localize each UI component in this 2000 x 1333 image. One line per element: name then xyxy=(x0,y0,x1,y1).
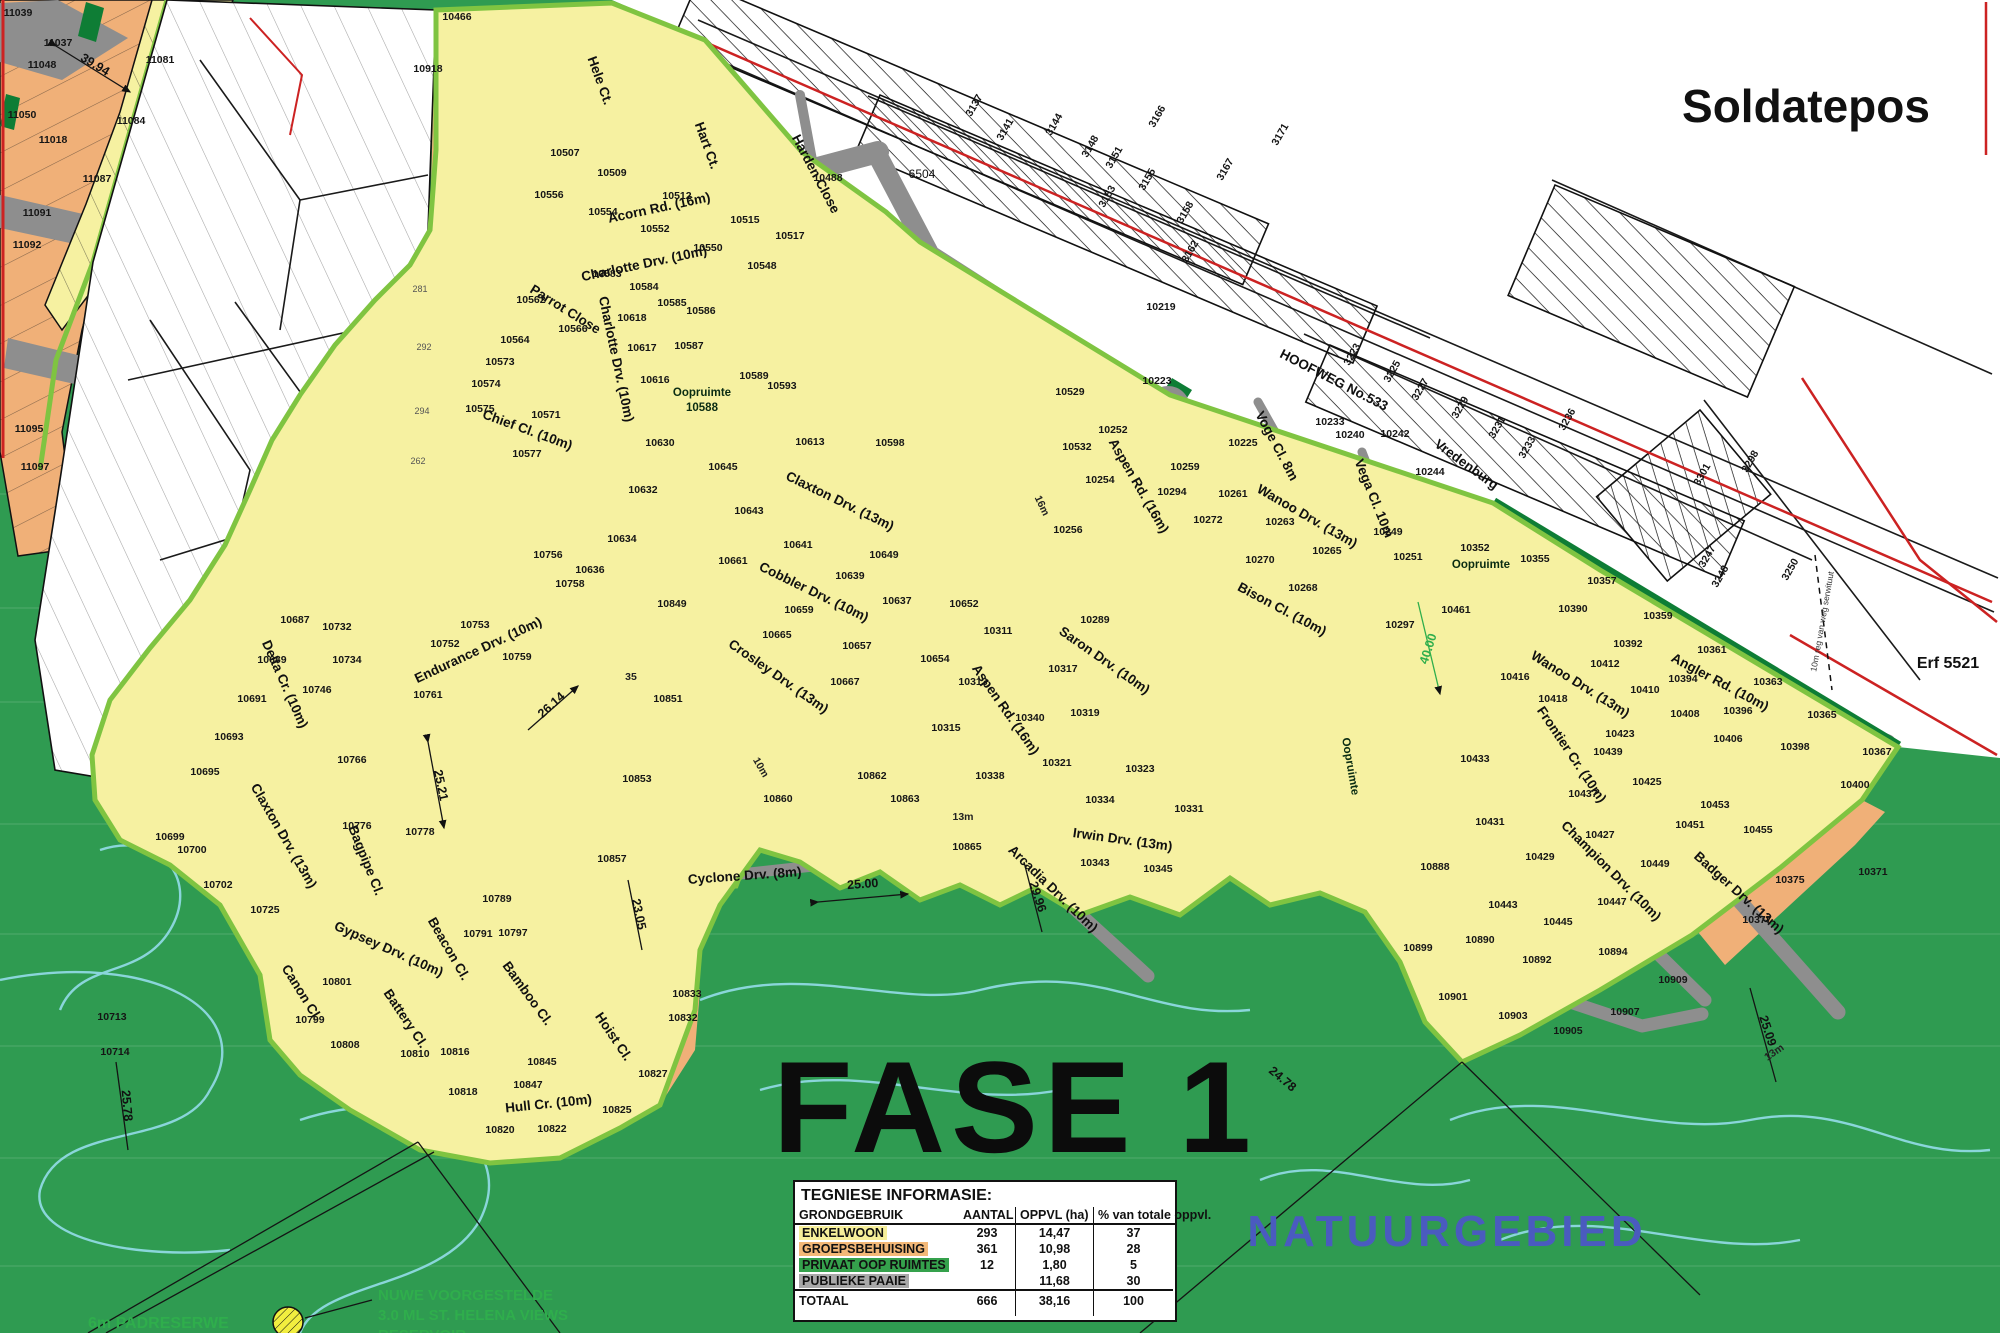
plot-number: 10425 xyxy=(1632,776,1661,788)
plot-number: 10753 xyxy=(460,619,489,631)
plot-number: 10799 xyxy=(295,1014,324,1026)
plot-number: 10649 xyxy=(869,549,898,561)
plot-number: 10827 xyxy=(638,1068,667,1080)
plot-number: 10466 xyxy=(442,11,471,23)
plot-number: 10894 xyxy=(1598,946,1627,958)
col-header: GRONDGEBRUIK xyxy=(795,1207,959,1223)
plot-number: 10639 xyxy=(835,570,864,582)
plot-number: 10613 xyxy=(795,436,824,448)
plot-number: 10634 xyxy=(607,533,636,545)
plot-number: 10509 xyxy=(597,167,626,179)
plot-number: 10566 xyxy=(558,323,587,335)
plot-number: 10265 xyxy=(1312,545,1341,557)
plot-number: 10340 xyxy=(1015,712,1044,724)
plot-number: 10574 xyxy=(471,378,500,390)
plot-number: 10810 xyxy=(400,1048,429,1060)
plot-number: 10394 xyxy=(1668,673,1697,685)
plot-number: 11037 xyxy=(44,37,73,49)
plot-number: 10714 xyxy=(100,1046,129,1058)
reservoir-label-line1: NUWE VOORGESTELDE xyxy=(378,1287,553,1304)
plot-number: 10554 xyxy=(588,206,617,218)
plot-number: 10338 xyxy=(975,770,1004,782)
plot-number: 11048 xyxy=(28,59,57,71)
plot-number: 10396 xyxy=(1723,705,1752,717)
total-label: TOTAAL xyxy=(795,1289,959,1316)
plot-number: 10244 xyxy=(1415,466,1444,478)
land-parcel-label: 6504 xyxy=(909,167,936,181)
plot-number: 10517 xyxy=(775,230,804,242)
plot-number: 10892 xyxy=(1522,954,1551,966)
plot-number: 10899 xyxy=(1403,942,1432,954)
plot-number: 10455 xyxy=(1743,824,1772,836)
plot-number: 10652 xyxy=(949,598,978,610)
plot-number: 10713 xyxy=(97,1011,126,1023)
oopruimte-label: Oopruimte xyxy=(1452,559,1510,571)
pct-value: 30 xyxy=(1093,1273,1173,1289)
plot-number: 10693 xyxy=(214,731,243,743)
oppvl-value: 10,98 xyxy=(1015,1241,1093,1257)
col-header: OPPVL (ha) xyxy=(1015,1207,1093,1223)
plot-number: 10317 xyxy=(1048,663,1077,675)
plot-number: 11087 xyxy=(83,173,112,185)
landuse-label: PRIVAAT OOP RUIMTES xyxy=(799,1258,949,1272)
plot-number: 10289 xyxy=(1080,614,1109,626)
plot-number: 11091 xyxy=(23,207,52,219)
plot-number: 281 xyxy=(412,284,427,294)
oppvl-value: 1,80 xyxy=(1015,1257,1093,1273)
plot-number: 10443 xyxy=(1488,899,1517,911)
plot-number: 10556 xyxy=(534,189,563,201)
padreserwe-label: 6m PADRESERWE xyxy=(88,1315,229,1332)
plot-number: 10297 xyxy=(1385,619,1414,631)
plot-number: 10240 xyxy=(1335,429,1364,441)
pct-value: 5 xyxy=(1093,1257,1173,1273)
plot-number: 10905 xyxy=(1553,1025,1582,1037)
plot-number: 10761 xyxy=(413,689,442,701)
plot-number: 10571 xyxy=(531,409,560,421)
table-row: GROEPSBEHUISING 361 10,98 28 xyxy=(795,1241,1175,1257)
plot-number: 10832 xyxy=(668,1012,697,1024)
plot-number: 10797 xyxy=(498,927,527,939)
pct-value: 37 xyxy=(1093,1225,1173,1241)
plot-number: 10313 xyxy=(958,676,987,688)
plot-number: 10562 xyxy=(516,294,545,306)
plot-number: 10512 xyxy=(662,190,691,202)
plot-number: 10449 xyxy=(1640,858,1669,870)
plot-number: 10654 xyxy=(920,653,949,665)
plot-number: 10345 xyxy=(1143,863,1172,875)
plot-number: 10315 xyxy=(931,722,960,734)
dimension: 25.78 xyxy=(119,1089,136,1121)
plot-number: 10375 xyxy=(1775,874,1804,886)
dimension: 25.00 xyxy=(847,876,879,892)
plot-number: 10778 xyxy=(405,826,434,838)
plot-number: 10847 xyxy=(513,1079,542,1091)
plot-number: 10907 xyxy=(1610,1006,1639,1018)
plot-number: 10617 xyxy=(627,342,656,354)
natuurgebied-label: NATUURGEBIED xyxy=(1247,1207,1646,1256)
plot-number: 10665 xyxy=(762,629,791,641)
reservoir-symbol xyxy=(273,1307,303,1333)
plot-number: 10699 xyxy=(155,831,184,843)
plot-number: 10431 xyxy=(1475,816,1504,828)
plot-number: 10700 xyxy=(177,844,206,856)
plot-number: 10725 xyxy=(250,904,279,916)
plot-number: 10408 xyxy=(1670,708,1699,720)
plot-number: 10400 xyxy=(1840,779,1869,791)
plot-number: 10377 xyxy=(1742,914,1771,926)
plot-number: 10398 xyxy=(1780,741,1809,753)
plot-number: 10263 xyxy=(1265,516,1294,528)
erf-label: Erf 5521 xyxy=(1917,655,1979,672)
plot-number: 10630 xyxy=(645,437,674,449)
plot-number: 10311 xyxy=(984,625,1013,637)
plot-number: 10392 xyxy=(1613,638,1642,650)
plot-number: 10752 xyxy=(430,638,459,650)
plot-number: 10451 xyxy=(1675,819,1704,831)
plot-number: 10833 xyxy=(672,988,701,1000)
plot-number: 11050 xyxy=(8,109,37,121)
plot-number: 10259 xyxy=(1170,461,1199,473)
plot-number: 10433 xyxy=(1460,753,1489,765)
plot-number: 10845 xyxy=(527,1056,556,1068)
plot-number: 10584 xyxy=(629,281,658,293)
plot-number: 10865 xyxy=(952,841,981,853)
plot-number: 11081 xyxy=(146,54,175,66)
plot-number: 10661 xyxy=(718,555,747,567)
plot-number: 10427 xyxy=(1585,829,1614,841)
table-row: PRIVAAT OOP RUIMTES 12 1,80 5 xyxy=(795,1257,1175,1273)
col-header: AANTAL xyxy=(959,1207,1015,1223)
plot-number: 10453 xyxy=(1700,799,1729,811)
plot-number: 10918 xyxy=(413,63,442,75)
plot-number: 10371 xyxy=(1858,866,1887,878)
plot-number: 10357 xyxy=(1587,575,1616,587)
plot-number: 10365 xyxy=(1807,709,1836,721)
plot-number: 11095 xyxy=(15,423,44,435)
total-aantal: 666 xyxy=(959,1289,1015,1316)
oppvl-value: 14,47 xyxy=(1015,1225,1093,1241)
oppvl-value: 11,68 xyxy=(1015,1273,1093,1289)
plot-number: 10587 xyxy=(674,340,703,352)
plot-number: 294 xyxy=(414,406,429,416)
plot-number: 10643 xyxy=(734,505,763,517)
table-title: TEGNIESE INFORMASIE: xyxy=(795,1182,1175,1207)
plot-number: 10632 xyxy=(628,484,657,496)
plot-number: 11097 xyxy=(21,461,50,473)
plot-number: 10598 xyxy=(875,437,904,449)
plot-number: 10488 xyxy=(813,172,842,184)
table-header-row: GRONDGEBRUIK AANTAL OPPVL (ha) % van tot… xyxy=(795,1207,1175,1225)
plot-number: 10343 xyxy=(1080,857,1109,869)
plot-number: 10589 xyxy=(739,370,768,382)
plot-number: 10261 xyxy=(1218,488,1247,500)
plot-number: 10219 xyxy=(1146,301,1175,313)
aantal-value xyxy=(959,1273,1015,1289)
plot-number: 292 xyxy=(416,342,431,352)
plot-number: 10423 xyxy=(1605,728,1634,740)
plot-number: 10732 xyxy=(322,621,351,633)
plot-number: 10507 xyxy=(550,147,579,159)
plot-number: 10909 xyxy=(1658,974,1687,986)
plot-number: 10862 xyxy=(857,770,886,782)
plot-number: 10410 xyxy=(1630,684,1659,696)
plot-number: 10321 xyxy=(1042,757,1071,769)
plot-number: 10776 xyxy=(342,820,371,832)
plot-number: 10851 xyxy=(653,693,682,705)
plot-number: 10860 xyxy=(763,793,792,805)
plot-number: 10529 xyxy=(1055,386,1084,398)
plot-number: 10256 xyxy=(1053,524,1082,536)
plot-number: 10272 xyxy=(1193,514,1222,526)
plot-number: 10618 xyxy=(617,312,646,324)
plot-number: 10439 xyxy=(1593,746,1622,758)
aantal-value: 12 xyxy=(959,1257,1015,1273)
plot-number: 10223 xyxy=(1142,375,1171,387)
map-canvas: Acorn Rd. (16m) Harden Close Hele Ct. Ha… xyxy=(0,0,2000,1333)
plot-number: 11084 xyxy=(117,115,146,127)
plot-number: 10593 xyxy=(767,380,796,392)
plot-number: 10252 xyxy=(1098,424,1127,436)
aantal-value: 293 xyxy=(959,1225,1015,1241)
plot-number: 10641 xyxy=(783,539,812,551)
plot-number: 10734 xyxy=(332,654,361,666)
landuse-label: GROEPSBEHUISING xyxy=(799,1242,928,1256)
plot-number: 10583 xyxy=(592,268,621,280)
plot-number: 10445 xyxy=(1543,916,1572,928)
plot-number: 10294 xyxy=(1157,486,1186,498)
plot-number: 10270 xyxy=(1245,554,1274,566)
plot-number: 10853 xyxy=(622,773,651,785)
plot-number: 10585 xyxy=(657,297,686,309)
plot-number: 10564 xyxy=(500,334,529,346)
plot-number: 10225 xyxy=(1228,437,1257,449)
plot-number: 10552 xyxy=(640,223,669,235)
landuse-label: PUBLIEKE PAAIE xyxy=(799,1274,909,1288)
plot-number: 10903 xyxy=(1498,1010,1527,1022)
plot-number: 10334 xyxy=(1085,794,1114,806)
aantal-value: 361 xyxy=(959,1241,1015,1257)
plot-number: 10249 xyxy=(1373,526,1402,538)
plot-number: 10515 xyxy=(730,214,759,226)
table-row: PUBLIEKE PAAIE 11,68 30 xyxy=(795,1273,1175,1289)
plot-number: 10890 xyxy=(1465,934,1494,946)
plot-number: 11039 xyxy=(4,7,33,19)
total-oppvl: 38,16 xyxy=(1015,1289,1093,1316)
plot-number: 10822 xyxy=(537,1123,566,1135)
plot-number: 10233 xyxy=(1315,416,1344,428)
plot-number: 10363 xyxy=(1753,676,1782,688)
plot-number: 10616 xyxy=(640,374,669,386)
plot-number: 10691 xyxy=(237,693,266,705)
plot-number: 10406 xyxy=(1713,733,1742,745)
reservoir-label-line3: RESERVOIR xyxy=(378,1327,466,1333)
plot-number: 10268 xyxy=(1288,582,1317,594)
plot-number: 10331 xyxy=(1174,803,1203,815)
plot-number: 10687 xyxy=(280,614,309,626)
plot-number: 10355 xyxy=(1520,553,1549,565)
table-total-row: TOTAAL 666 38,16 100 xyxy=(795,1289,1175,1316)
plot-number: 10461 xyxy=(1441,604,1470,616)
plot-number: 10586 xyxy=(686,305,715,317)
plot-number: 10418 xyxy=(1538,693,1567,705)
pct-value: 28 xyxy=(1093,1241,1173,1257)
plot-number: 10702 xyxy=(203,879,232,891)
town-planning-map: Acorn Rd. (16m) Harden Close Hele Ct. Ha… xyxy=(0,0,2000,1333)
plot-number: 10766 xyxy=(337,754,366,766)
plot-number: 10390 xyxy=(1558,603,1587,615)
plot-number: 10577 xyxy=(512,448,541,460)
plot-number: 10548 xyxy=(747,260,776,272)
plot-number: 10746 xyxy=(302,684,331,696)
plot-number: 10756 xyxy=(533,549,562,561)
table-row: ENKELWOON 293 14,47 37 xyxy=(795,1225,1175,1241)
plot-number: 10863 xyxy=(890,793,919,805)
technical-info-table: TEGNIESE INFORMASIE: GRONDGEBRUIK AANTAL… xyxy=(793,1180,1177,1322)
plot-number: 10429 xyxy=(1525,851,1554,863)
landuse-label: ENKELWOON xyxy=(799,1226,887,1240)
soldatepos-label: Soldatepos xyxy=(1682,80,1930,132)
col-header: % van totale oppvl. xyxy=(1093,1207,1173,1223)
road-width-mark: 13m xyxy=(952,811,973,823)
phase-title: FASE 1 xyxy=(773,1034,1257,1180)
plot-number: 10689 xyxy=(257,654,286,666)
plot-number: 10251 xyxy=(1393,551,1422,563)
plot-number: 10367 xyxy=(1862,746,1891,758)
plot-number: 10437 xyxy=(1568,788,1597,800)
plot-number: 10645 xyxy=(708,461,737,473)
plot-number: 10416 xyxy=(1500,671,1529,683)
plot-number: 10791 xyxy=(463,928,492,940)
plot-number: 10759 xyxy=(502,651,531,663)
plot-number: 10657 xyxy=(842,640,871,652)
plot-number: 10816 xyxy=(440,1046,469,1058)
plot-number: 10818 xyxy=(448,1086,477,1098)
plot-number: 10254 xyxy=(1085,474,1114,486)
plot-number: 10758 xyxy=(555,578,584,590)
plot-number: 10323 xyxy=(1125,763,1154,775)
plot-number: 10857 xyxy=(597,853,626,865)
oopruimte-label: Oopruimte xyxy=(673,387,731,399)
plot-number: 10532 xyxy=(1062,441,1091,453)
oopruimte-number: 10588 xyxy=(686,402,719,414)
plot-number: 10573 xyxy=(485,356,514,368)
plot-number: 10901 xyxy=(1438,991,1467,1003)
plot-number: 10575 xyxy=(465,403,494,415)
plot-number: 10242 xyxy=(1380,428,1409,440)
plot-number: 10801 xyxy=(322,976,351,988)
plot-number: 10888 xyxy=(1420,861,1449,873)
plot-number: 10637 xyxy=(882,595,911,607)
plot-number: 10319 xyxy=(1070,707,1099,719)
plot-number: 10447 xyxy=(1597,896,1626,908)
plot-number: 10636 xyxy=(575,564,604,576)
plot-number: 11018 xyxy=(39,134,68,146)
plot-number: 10412 xyxy=(1590,658,1619,670)
plot-number: 10849 xyxy=(657,598,686,610)
plot-number: 10789 xyxy=(482,893,511,905)
plot-number: 10808 xyxy=(330,1039,359,1051)
plot-number: 10825 xyxy=(602,1104,631,1116)
plot-number: 11092 xyxy=(13,239,42,251)
plot-number: 262 xyxy=(410,456,425,466)
plot-number: 10359 xyxy=(1643,610,1672,622)
plot-number: 10667 xyxy=(830,676,859,688)
road-width-mark: 35 xyxy=(625,671,637,683)
total-pct: 100 xyxy=(1093,1289,1173,1316)
plot-number: 10659 xyxy=(784,604,813,616)
plot-number: 10695 xyxy=(190,766,219,778)
plot-number: 10550 xyxy=(693,242,722,254)
plot-number: 10820 xyxy=(485,1124,514,1136)
reservoir-label-line2: 3.0 ML ST. HELENA VIEWS xyxy=(378,1307,568,1324)
plot-number: 10361 xyxy=(1697,644,1726,656)
